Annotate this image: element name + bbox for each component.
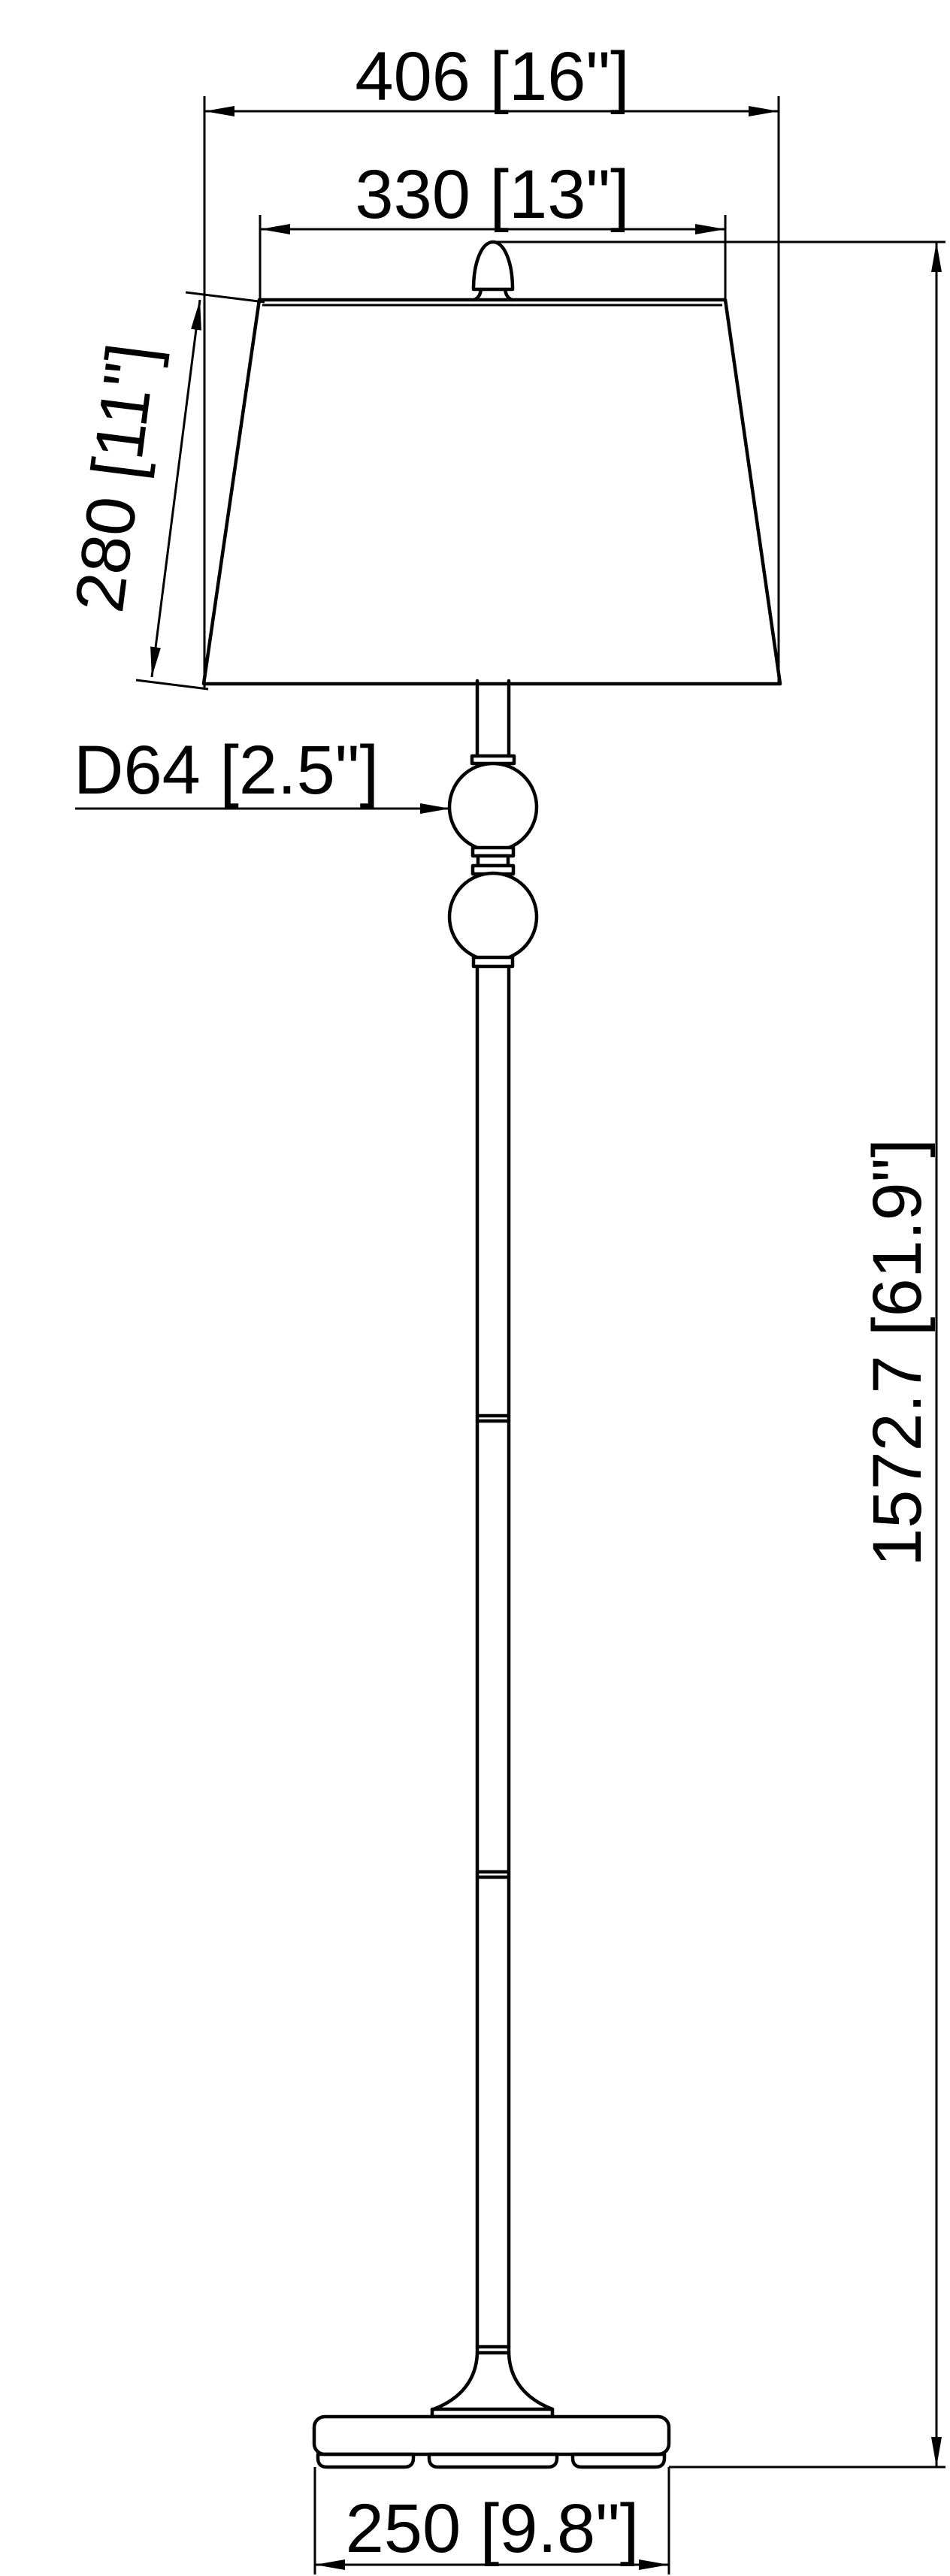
arrowhead-right — [639, 2559, 669, 2570]
dim-label-base-width: 250 [9.8"] — [346, 2490, 640, 2567]
lamp-column — [477, 966, 509, 2353]
dimension-base-width: 250 [9.8"] — [315, 2467, 669, 2574]
floor-lamp-dimension-drawing: 406 [16"] 330 [13"] 280 [11"] D64 [2.5"]… — [0, 0, 950, 2576]
drawing-canvas: 406 [16"] 330 [13"] 280 [11"] D64 [2.5"]… — [0, 0, 950, 2576]
dim-label-overall-height: 1572.7 [61.9"] — [859, 1138, 936, 1567]
dim-label-ball-diameter: D64 [2.5"] — [74, 732, 379, 809]
arrowhead-bottom — [150, 646, 161, 677]
upper-stem — [472, 681, 514, 763]
dimension-ball-diameter: D64 [2.5"] — [74, 732, 450, 814]
arrowhead-bottom — [931, 2437, 942, 2467]
lamp-finial — [473, 242, 513, 300]
arrowhead-left — [204, 106, 234, 116]
base-foot-left — [318, 2454, 413, 2467]
arrowhead-left — [315, 2559, 345, 2570]
arrowhead-right — [749, 106, 779, 116]
base-flare-left — [434, 2353, 477, 2409]
ball-ferrule — [473, 957, 513, 966]
base-plate — [314, 2417, 669, 2454]
base-flare-right — [509, 2353, 552, 2409]
lamp-shade — [204, 300, 780, 684]
dim-label-shade-top-width: 330 [13"] — [355, 156, 629, 233]
arrowhead-left — [260, 224, 290, 234]
shade-outline — [204, 300, 780, 684]
dim-label-shade-bottom-width: 406 [16"] — [355, 38, 629, 115]
glass-ball-lower — [449, 873, 537, 960]
lamp-base — [314, 2353, 669, 2467]
finial-dome — [473, 242, 513, 289]
ext-tick-top — [186, 292, 265, 302]
lamp-drawing — [204, 242, 780, 2467]
dim-label-shade-height: 280 [11"] — [61, 340, 171, 616]
arrowhead-top — [931, 242, 942, 272]
base-foot-middle — [429, 2454, 557, 2467]
decorative-balls — [449, 763, 537, 966]
arrowhead-right — [695, 224, 725, 234]
arrowhead-leader — [420, 803, 450, 814]
dimension-shade-bottom-width: 406 [16"] — [204, 38, 779, 688]
ext-tick-bottom — [136, 680, 208, 689]
dimension-shade-height: 280 [11"] — [61, 292, 265, 689]
dimension-shade-top-width: 330 [13"] — [260, 156, 725, 300]
dimension-overall-height: 1572.7 [61.9"] — [496, 242, 945, 2467]
base-foot-right — [573, 2454, 664, 2467]
arrowhead-top — [191, 300, 201, 331]
glass-ball-upper — [449, 763, 537, 851]
